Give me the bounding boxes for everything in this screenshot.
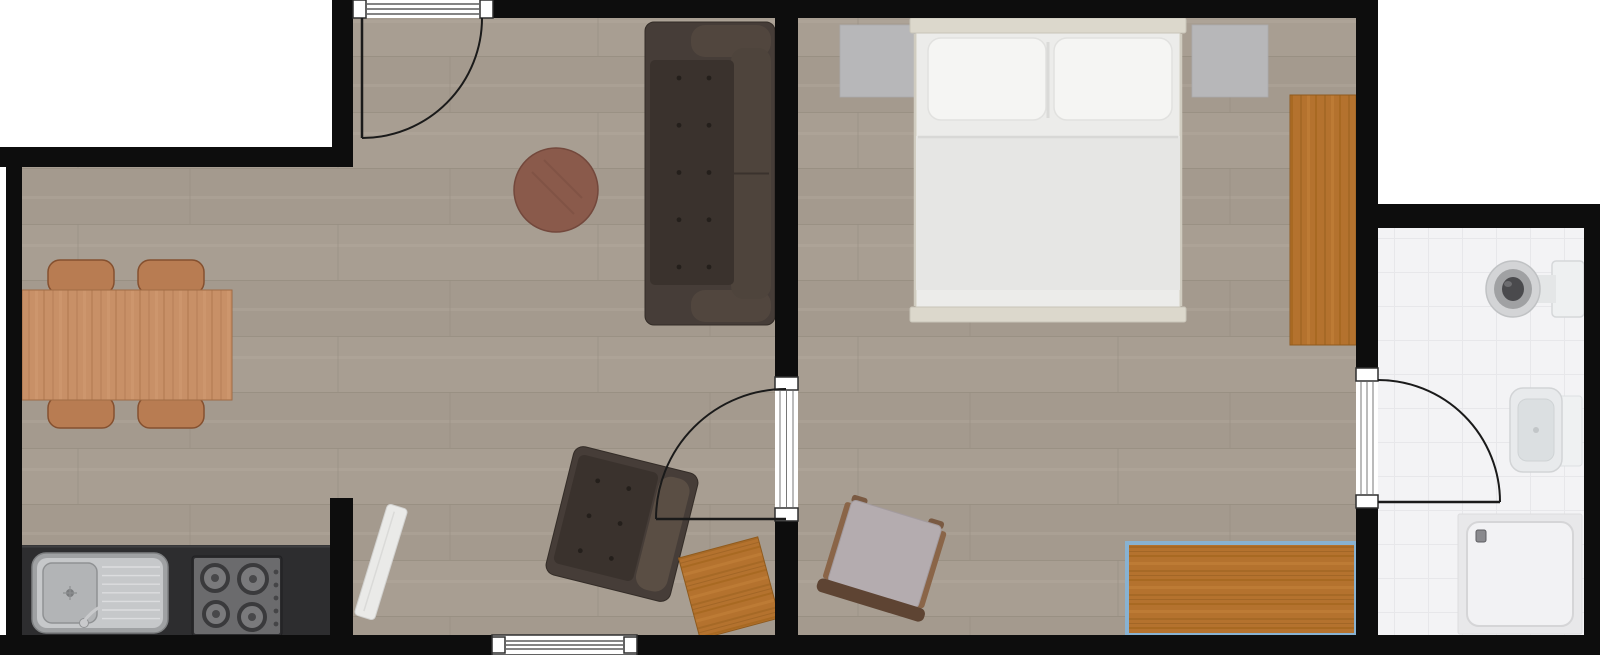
coffee-table[interactable]: [514, 148, 598, 232]
dining-chair[interactable]: [48, 396, 114, 428]
wall-bedroom-bathroom: [1356, 0, 1378, 655]
floor-plan-canvas: [0, 0, 1600, 655]
door-jamb: [353, 0, 366, 18]
sofa-seat-tufted: [650, 60, 734, 285]
bed-pillow-left: [928, 38, 1046, 120]
shower-tray[interactable]: [1458, 514, 1582, 634]
double-bed[interactable]: [910, 18, 1186, 322]
wall-topleft-vertical: [332, 0, 353, 167]
door-jamb: [480, 0, 493, 18]
selection-outline: [1127, 543, 1356, 635]
wall-bathroom-top: [1356, 204, 1600, 228]
wall-left: [6, 147, 22, 655]
dining-chair[interactable]: [138, 260, 204, 294]
door-jamb: [775, 377, 798, 390]
wood-surface: [1290, 95, 1356, 345]
bed-pillow-right: [1054, 38, 1172, 120]
floor-plan-stage: [0, 0, 1600, 655]
window-living-bottom[interactable]: [492, 635, 637, 655]
dining-chair[interactable]: [138, 396, 204, 428]
shower-drain: [1476, 530, 1486, 542]
washbasin[interactable]: [1510, 388, 1582, 472]
stove-knob: [274, 622, 279, 627]
window-jamb: [492, 637, 505, 653]
bed-footboard: [910, 307, 1186, 322]
basin-drain: [1533, 427, 1539, 433]
sofa[interactable]: [645, 22, 775, 325]
bed-duvet: [916, 136, 1180, 290]
stove-cooktop[interactable]: [192, 556, 282, 636]
wall-topleft-horizontal: [0, 147, 353, 167]
stove-knob: [274, 570, 279, 575]
toilet-tank: [1552, 261, 1584, 317]
wall-right: [1584, 204, 1600, 655]
door-jamb: [1356, 495, 1378, 508]
door-jamb: [1356, 368, 1378, 381]
dining-table[interactable]: [22, 290, 232, 400]
bed-headboard: [910, 18, 1186, 33]
wall-living-bedroom: [775, 0, 798, 655]
dining-chair[interactable]: [48, 260, 114, 294]
window-jamb: [624, 637, 637, 653]
desk-selected[interactable]: [1127, 543, 1356, 635]
kitchen-sink[interactable]: [32, 553, 168, 633]
bedside-mat-left[interactable]: [840, 25, 916, 97]
wall-kitchen-stub: [330, 498, 353, 655]
stove-knob: [274, 596, 279, 601]
stove-knob: [274, 609, 279, 614]
stove-knob: [274, 583, 279, 588]
wardrobe[interactable]: [1290, 95, 1356, 345]
bedside-mat-right[interactable]: [1192, 25, 1268, 97]
